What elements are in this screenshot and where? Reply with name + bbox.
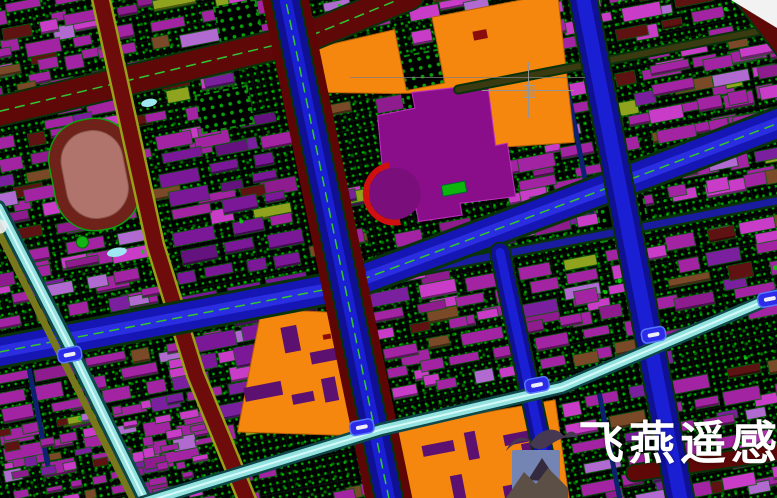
pond xyxy=(106,246,127,259)
map-layer xyxy=(0,0,777,498)
cad-map-canvas[interactable]: 飞燕遥感 xyxy=(0,0,777,498)
tree xyxy=(75,235,89,249)
road-g1 xyxy=(574,0,685,498)
pond xyxy=(140,97,157,108)
bridge-marker xyxy=(757,290,777,308)
map-features-svg xyxy=(0,0,777,498)
